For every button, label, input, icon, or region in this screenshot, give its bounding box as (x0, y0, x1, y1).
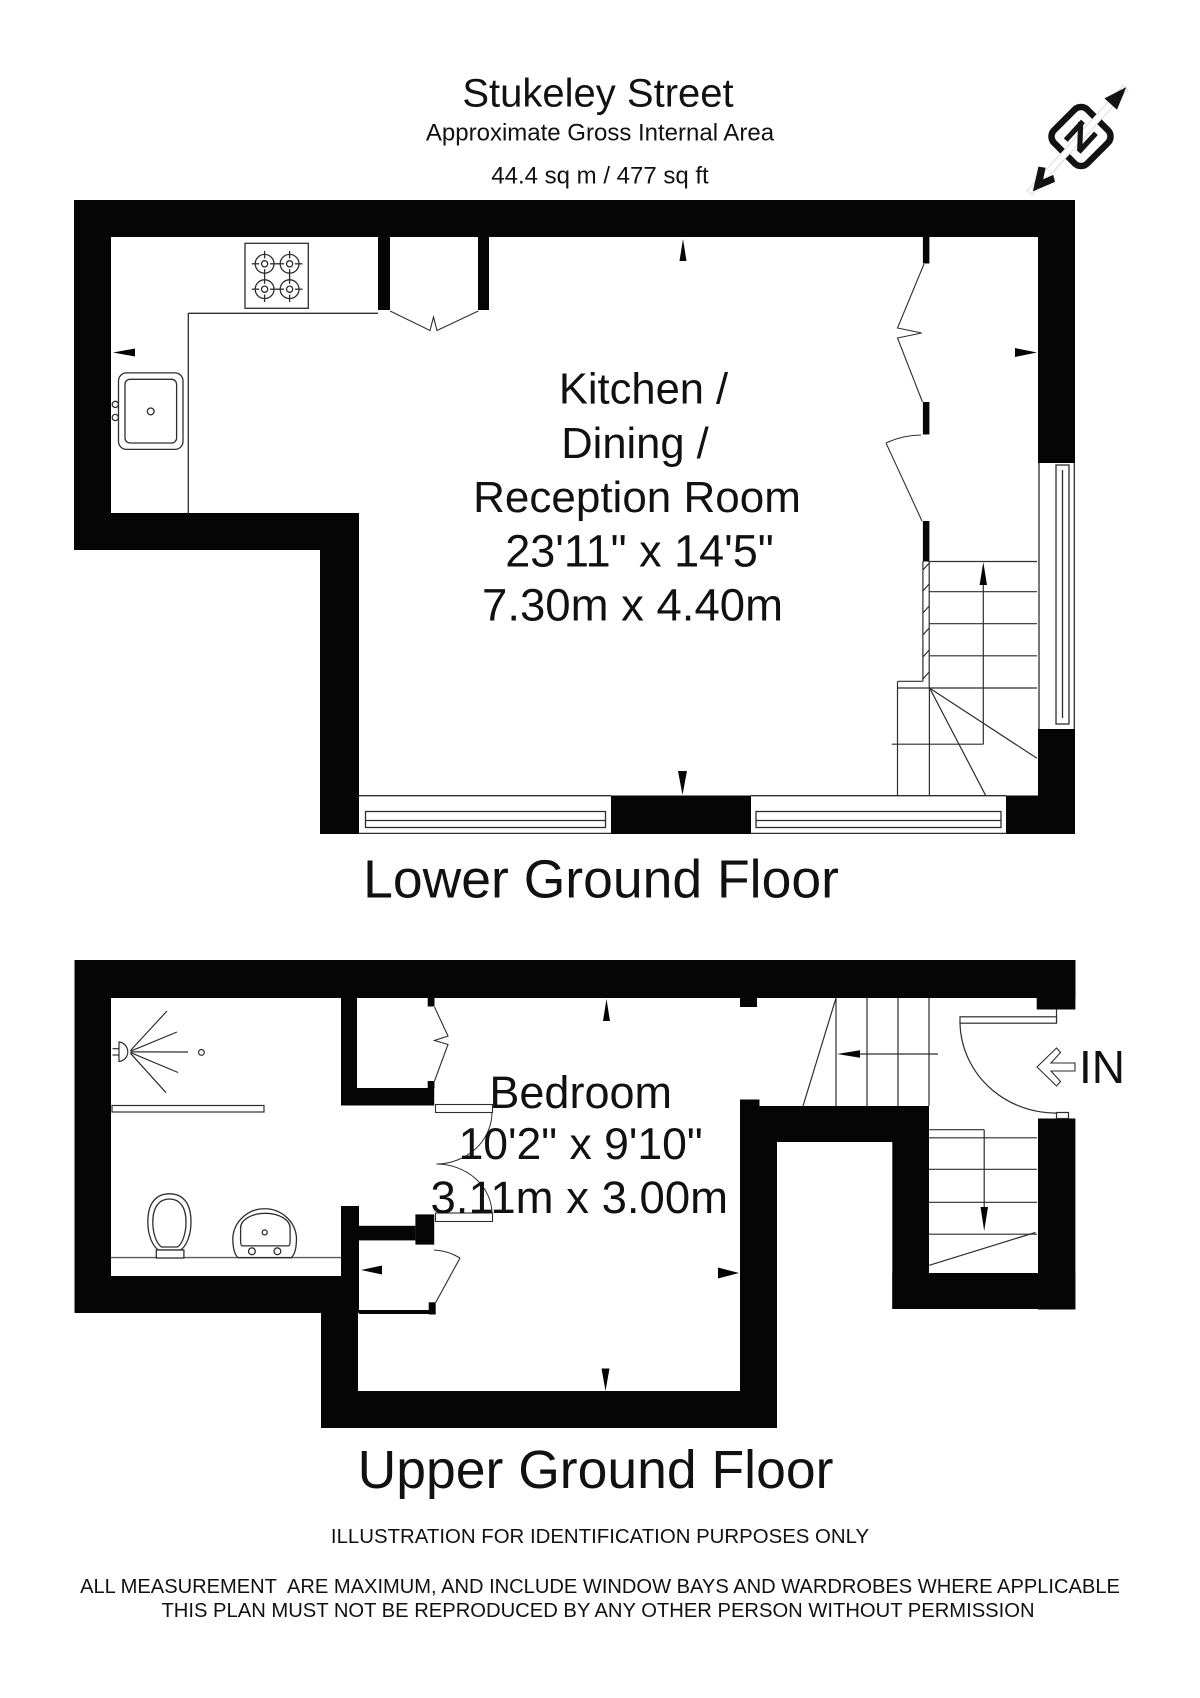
svg-text:3.11m x 3.00m: 3.11m x 3.00m (431, 1172, 729, 1223)
svg-text:Upper Ground Floor: Upper Ground Floor (358, 1441, 834, 1500)
svg-text:Reception Room: Reception Room (473, 473, 801, 522)
svg-text:7.30m x 4.40m: 7.30m x 4.40m (482, 580, 783, 631)
svg-text:Dining /: Dining / (561, 420, 709, 468)
svg-text:Bedroom: Bedroom (489, 1067, 672, 1118)
svg-text:44.4 sq m / 477 sq ft: 44.4 sq m / 477 sq ft (491, 162, 709, 189)
svg-text:Kitchen /: Kitchen / (559, 366, 729, 414)
svg-text:Lower Ground Floor: Lower Ground Floor (363, 851, 839, 910)
svg-text:Stukeley Street: Stukeley Street (462, 72, 733, 116)
svg-text:THIS PLAN MUST NOT BE REPRODUC: THIS PLAN MUST NOT BE REPRODUCED BY ANY … (161, 1600, 1034, 1622)
svg-text:ALL MEASUREMENT ARE MAXIMUM,: ALL MEASUREMENT ARE MAXIMUM, AND INCLUDE… (80, 1576, 1120, 1598)
svg-text:10'2" x 9'10": 10'2" x 9'10" (459, 1120, 703, 1169)
svg-text:23'11" x 14'5": 23'11" x 14'5" (505, 525, 773, 576)
svg-text:IN: IN (1079, 1041, 1125, 1093)
svg-text:Approximate Gross Internal Are: Approximate Gross Internal Area (426, 120, 775, 147)
svg-text:ILLUSTRATION FOR IDENTIFICATIO: ILLUSTRATION FOR IDENTIFICATION PURPOSES… (331, 1526, 870, 1548)
